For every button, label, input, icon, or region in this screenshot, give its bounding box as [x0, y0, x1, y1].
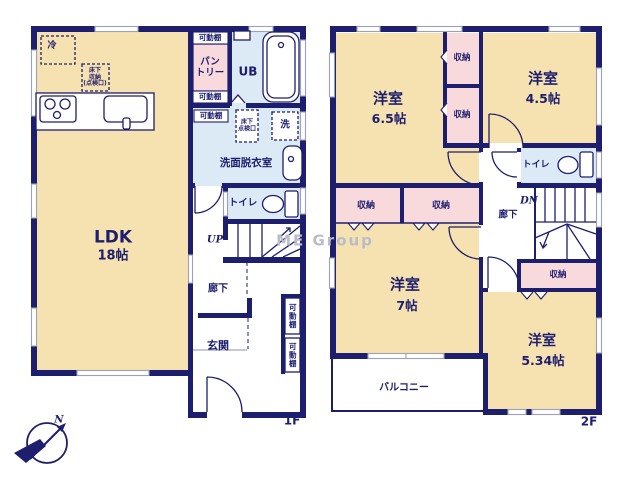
shelf-low-label: 可動棚	[200, 112, 223, 120]
hallway-1f-label: 廊下	[208, 283, 228, 294]
ldk-size-label: 18帖	[97, 250, 128, 265]
room-ldk	[36, 30, 191, 372]
window	[597, 68, 602, 125]
compass-icon	[14, 423, 67, 463]
unit-bath-label: UB	[239, 65, 258, 78]
window	[77, 371, 149, 376]
ldk-name-label: LDK	[94, 228, 132, 247]
pantry-label: パン トリー	[196, 57, 225, 78]
hallway-2f-label: 廊下	[498, 211, 517, 222]
room-65	[335, 33, 443, 183]
underfloor-storage-label: 床下 収納 (点検口)	[83, 68, 107, 88]
room7-name-label: 洋室	[390, 277, 420, 294]
room65-name-label: 洋室	[373, 91, 403, 108]
toilet-2f-label: トイレ	[522, 160, 549, 170]
sliding-door	[224, 192, 228, 216]
washroom-label: 洗面脱衣室	[220, 158, 273, 170]
window	[508, 410, 526, 415]
fridge-label: 冷	[47, 41, 56, 51]
shoe-shelf-lower-label: 可動棚	[288, 342, 296, 368]
inspection-hatch-label: 床下 点検口	[238, 119, 256, 132]
window	[330, 53, 335, 97]
toilet-1f-label: トイレ	[229, 199, 258, 210]
laundry-label: 洗	[280, 121, 290, 132]
room-534	[483, 292, 597, 410]
stairs-up-label: UP	[207, 234, 223, 245]
compass-north-label: N	[54, 414, 63, 425]
window	[301, 40, 306, 96]
entrance-label: 玄関	[207, 340, 229, 352]
toilet2f-door-icon	[492, 152, 517, 177]
window	[549, 27, 580, 32]
window	[532, 410, 560, 415]
floor1-room-fills	[36, 30, 300, 372]
floor2-label: 2F	[581, 415, 598, 428]
floor1-label: 1F	[284, 414, 301, 427]
closet-d-label: 収納	[432, 201, 450, 211]
stairs-2f	[535, 188, 596, 259]
room45-name-label: 洋室	[528, 71, 558, 88]
watermark: ME Group	[276, 233, 374, 250]
window	[597, 152, 602, 178]
window	[301, 188, 306, 214]
room534-size-label: 5.34帖	[521, 354, 564, 368]
window	[32, 184, 37, 218]
washbasin-icon	[283, 146, 302, 180]
window	[249, 27, 273, 32]
balcony-label: バルコニー	[379, 382, 429, 393]
sliding-door	[189, 255, 193, 283]
room65-size-label: 6.5帖	[372, 112, 407, 126]
kitchen-counter-icon	[36, 93, 154, 130]
window	[417, 27, 462, 32]
closet-e-label: 収納	[549, 271, 566, 281]
balcony-rail	[331, 358, 333, 412]
room-45	[483, 33, 597, 143]
faucet-icon	[123, 118, 130, 129]
closet-a-label: 収納	[453, 54, 470, 64]
closet-c-label: 収納	[357, 201, 375, 211]
window	[357, 27, 380, 32]
closet-b-label: 収納	[453, 111, 470, 121]
shelf-mid-label: 可動棚	[199, 93, 222, 101]
washroom-door-icon	[195, 186, 222, 213]
window	[32, 308, 37, 346]
room534-door-icon	[488, 257, 519, 288]
stairs-down-label: DN	[520, 195, 538, 206]
room7-size-label: 7帖	[396, 299, 417, 313]
front-door-icon	[207, 377, 242, 412]
room534-name-label: 洋室	[528, 334, 556, 350]
room45-size-label: 4.5帖	[526, 92, 561, 106]
balcony-rail	[331, 410, 486, 412]
window	[301, 112, 306, 140]
window	[330, 258, 335, 288]
window	[597, 193, 602, 227]
shoe-shelf-upper-label: 可動棚	[288, 303, 296, 329]
window	[597, 318, 602, 353]
floorplan-page: LDK 18帖 冷 床下 収納 (点検口) 可動棚 パン トリー 可動棚 可動棚…	[0, 0, 640, 480]
shelf-top-label: 可動棚	[199, 34, 222, 42]
window	[95, 27, 138, 32]
